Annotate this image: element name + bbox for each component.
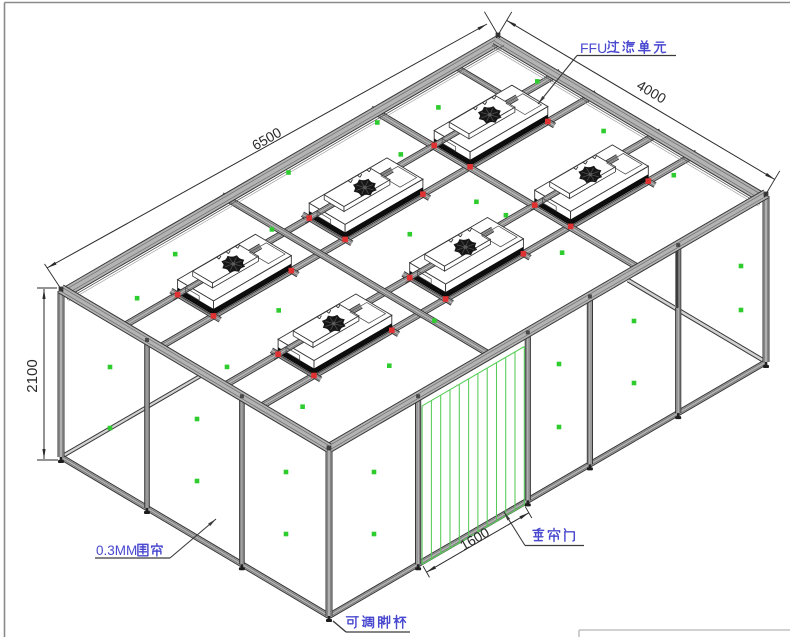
svg-text:2100: 2100 <box>24 359 41 392</box>
svg-text:0.3MM: 0.3MM <box>96 543 137 558</box>
svg-text:FFU: FFU <box>580 40 607 56</box>
